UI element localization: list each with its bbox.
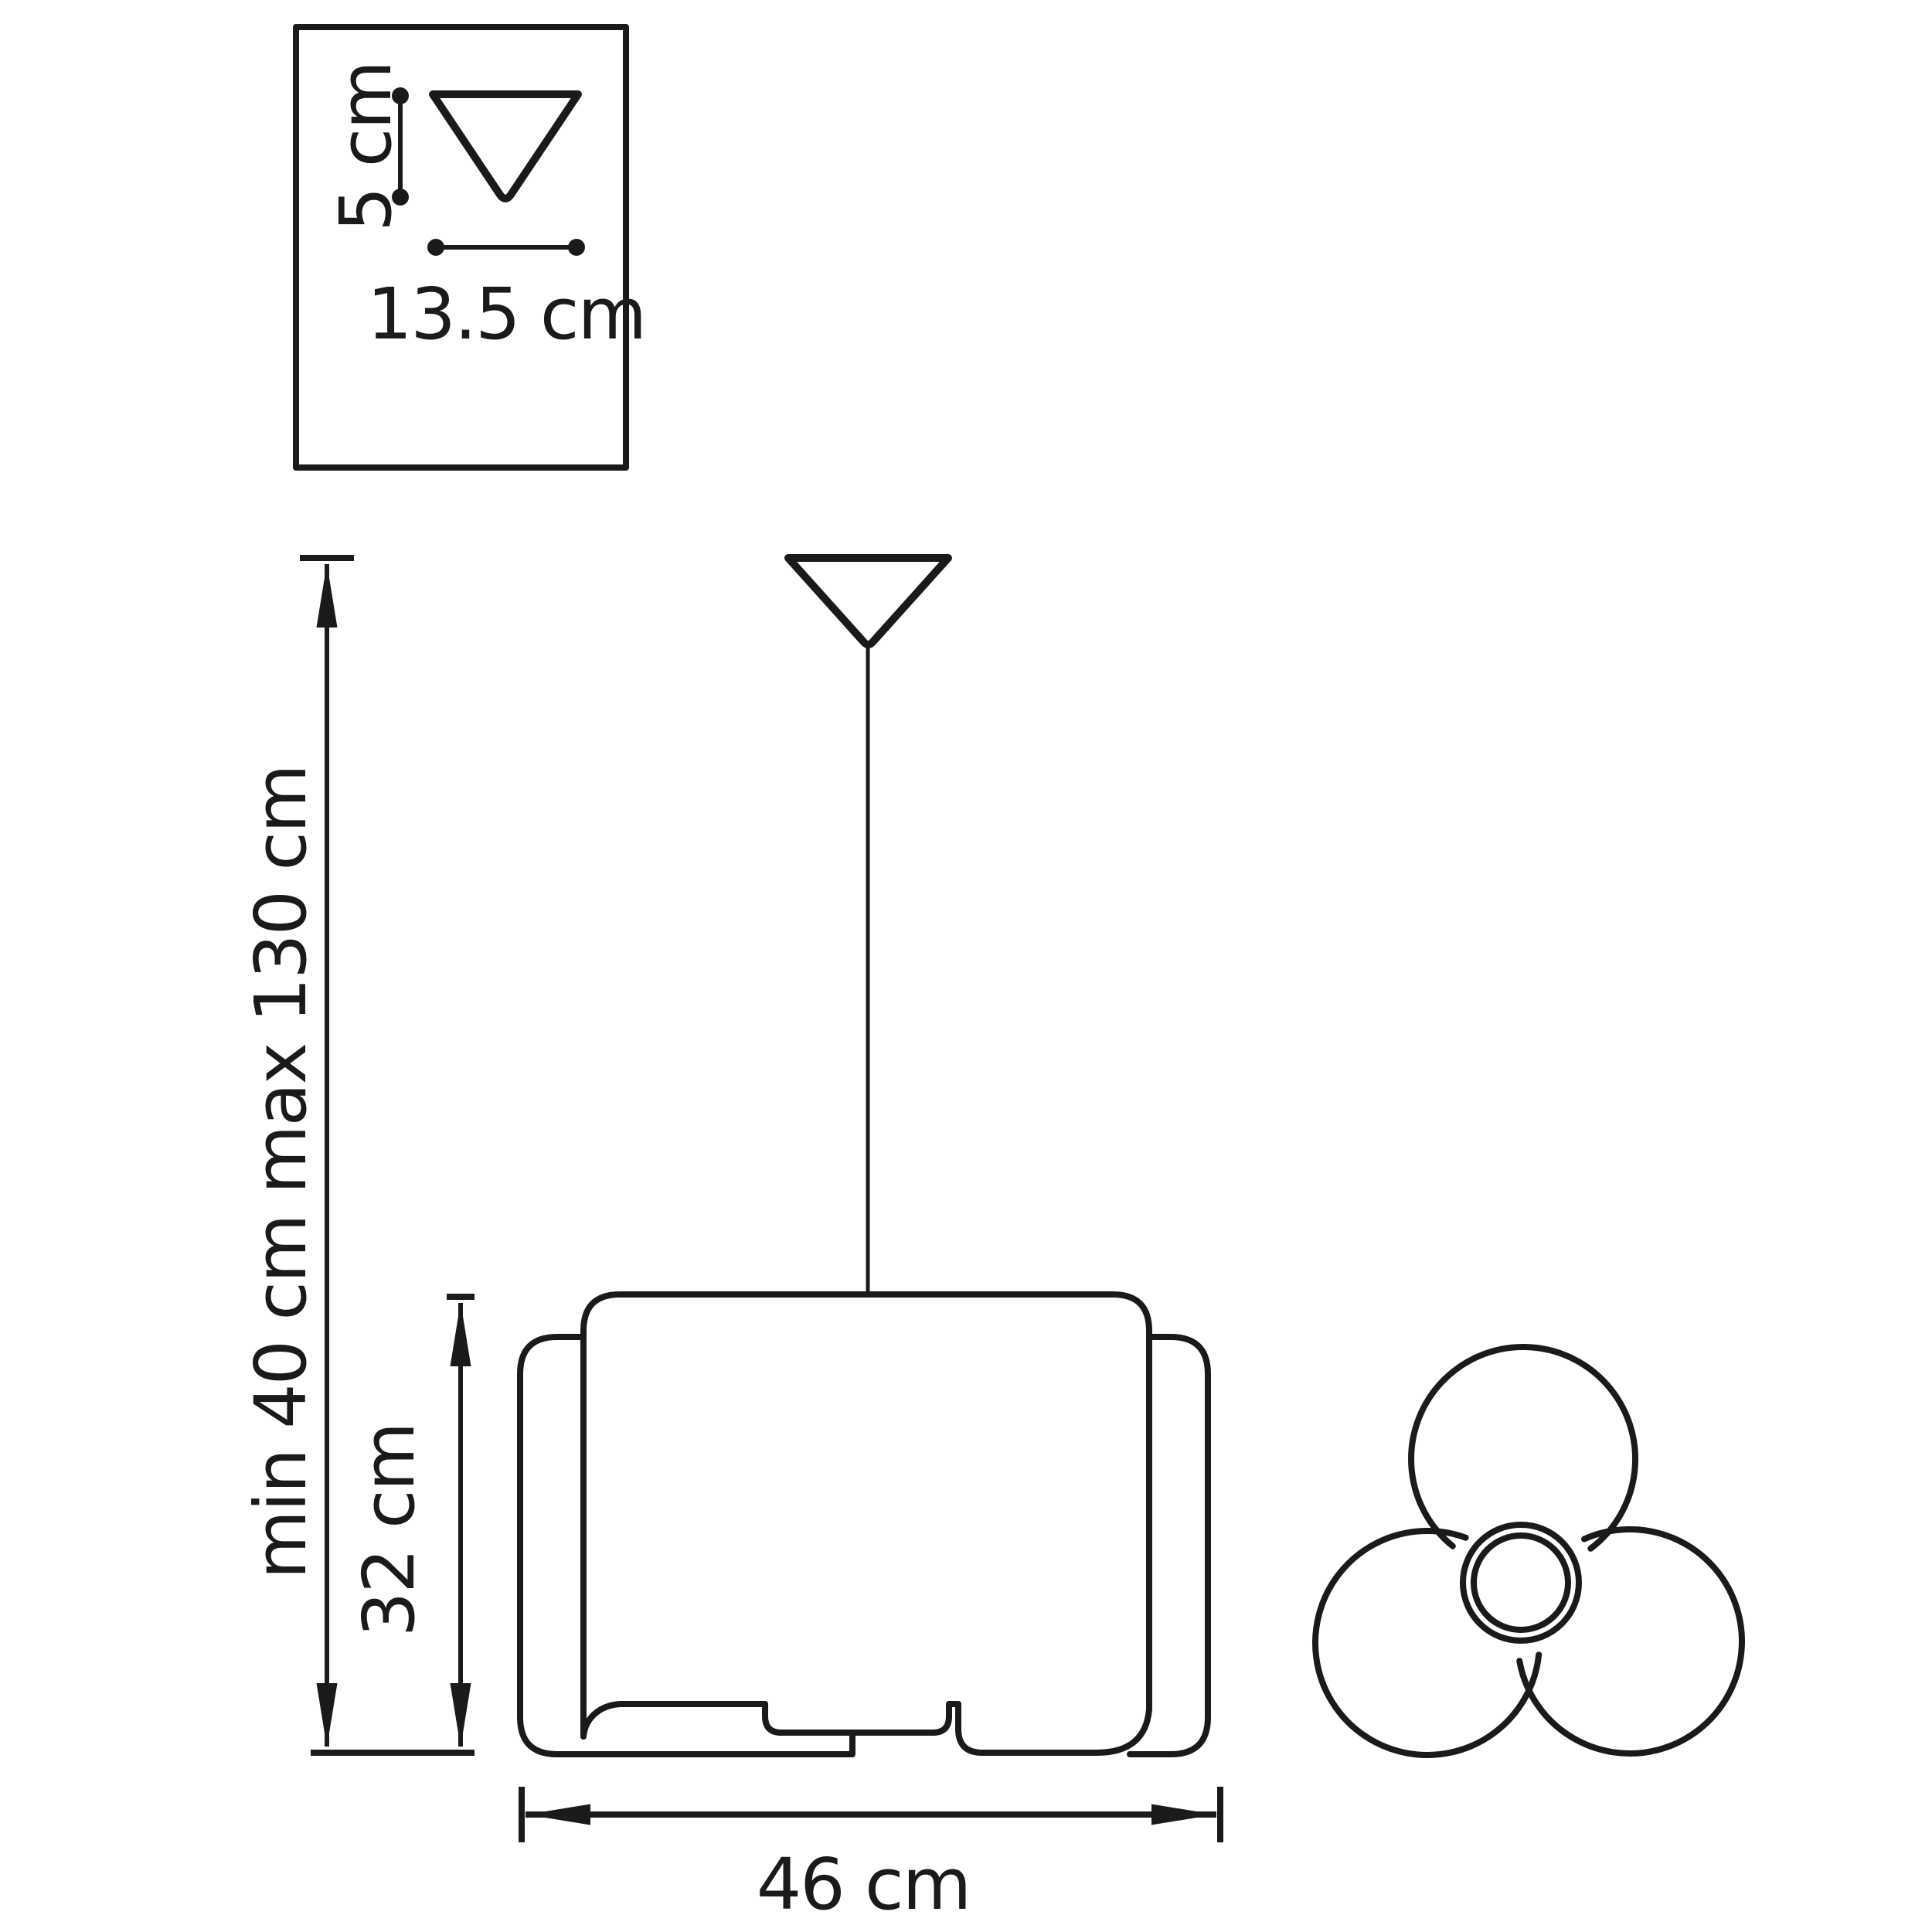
top-view-petal-right <box>1519 1529 1742 1753</box>
overall-height-label: min 40 cm max 130 cm <box>240 765 322 1579</box>
dim-dot <box>427 239 444 256</box>
shade-width-label: 46 cm <box>757 1843 971 1926</box>
top-view-petal-left <box>1315 1531 1539 1755</box>
lamp-dimension-drawing: 5 cm 13.5 cm <box>0 0 1932 1932</box>
inset-height-label: 5 cm <box>325 62 407 232</box>
arrow-up-icon <box>451 1302 471 1366</box>
inset-width-dimension: 13.5 cm <box>367 239 645 355</box>
top-view-outer-ring <box>1463 1525 1579 1641</box>
canopy-detail-inset: 5 cm 13.5 cm <box>296 27 645 468</box>
dim-dot <box>568 239 585 256</box>
shade-back-left-petal <box>520 1337 852 1754</box>
arrow-up-icon <box>317 563 338 628</box>
drawing-canvas: 5 cm 13.5 cm <box>0 0 1932 1932</box>
arrow-down-icon <box>451 1683 471 1747</box>
shade-width-dimension: 46 cm <box>522 1787 1220 1926</box>
shade-front-petal <box>583 1294 1149 1736</box>
shade-bottom-right-tab <box>958 1704 1149 1753</box>
inset-width-label: 13.5 cm <box>367 273 645 355</box>
shade-bottom-center-tab <box>765 1704 949 1733</box>
inset-canopy-triangle <box>433 94 578 199</box>
shade-height-dimension: 32 cm <box>348 1297 474 1747</box>
arrow-right-icon <box>1151 1804 1216 1825</box>
top-view-petal-top <box>1411 1347 1635 1549</box>
canopy-triangle <box>788 558 948 645</box>
arrow-down-icon <box>317 1683 338 1747</box>
arrow-left-icon <box>526 1804 590 1825</box>
pendant-side-view <box>520 558 1208 1754</box>
pendant-top-view <box>1315 1347 1742 1755</box>
inset-height-dimension: 5 cm <box>325 62 409 232</box>
shade-back-right-petal <box>1130 1337 1208 1754</box>
shade-height-label: 32 cm <box>348 1423 430 1638</box>
top-view-inner-ring <box>1474 1536 1568 1630</box>
